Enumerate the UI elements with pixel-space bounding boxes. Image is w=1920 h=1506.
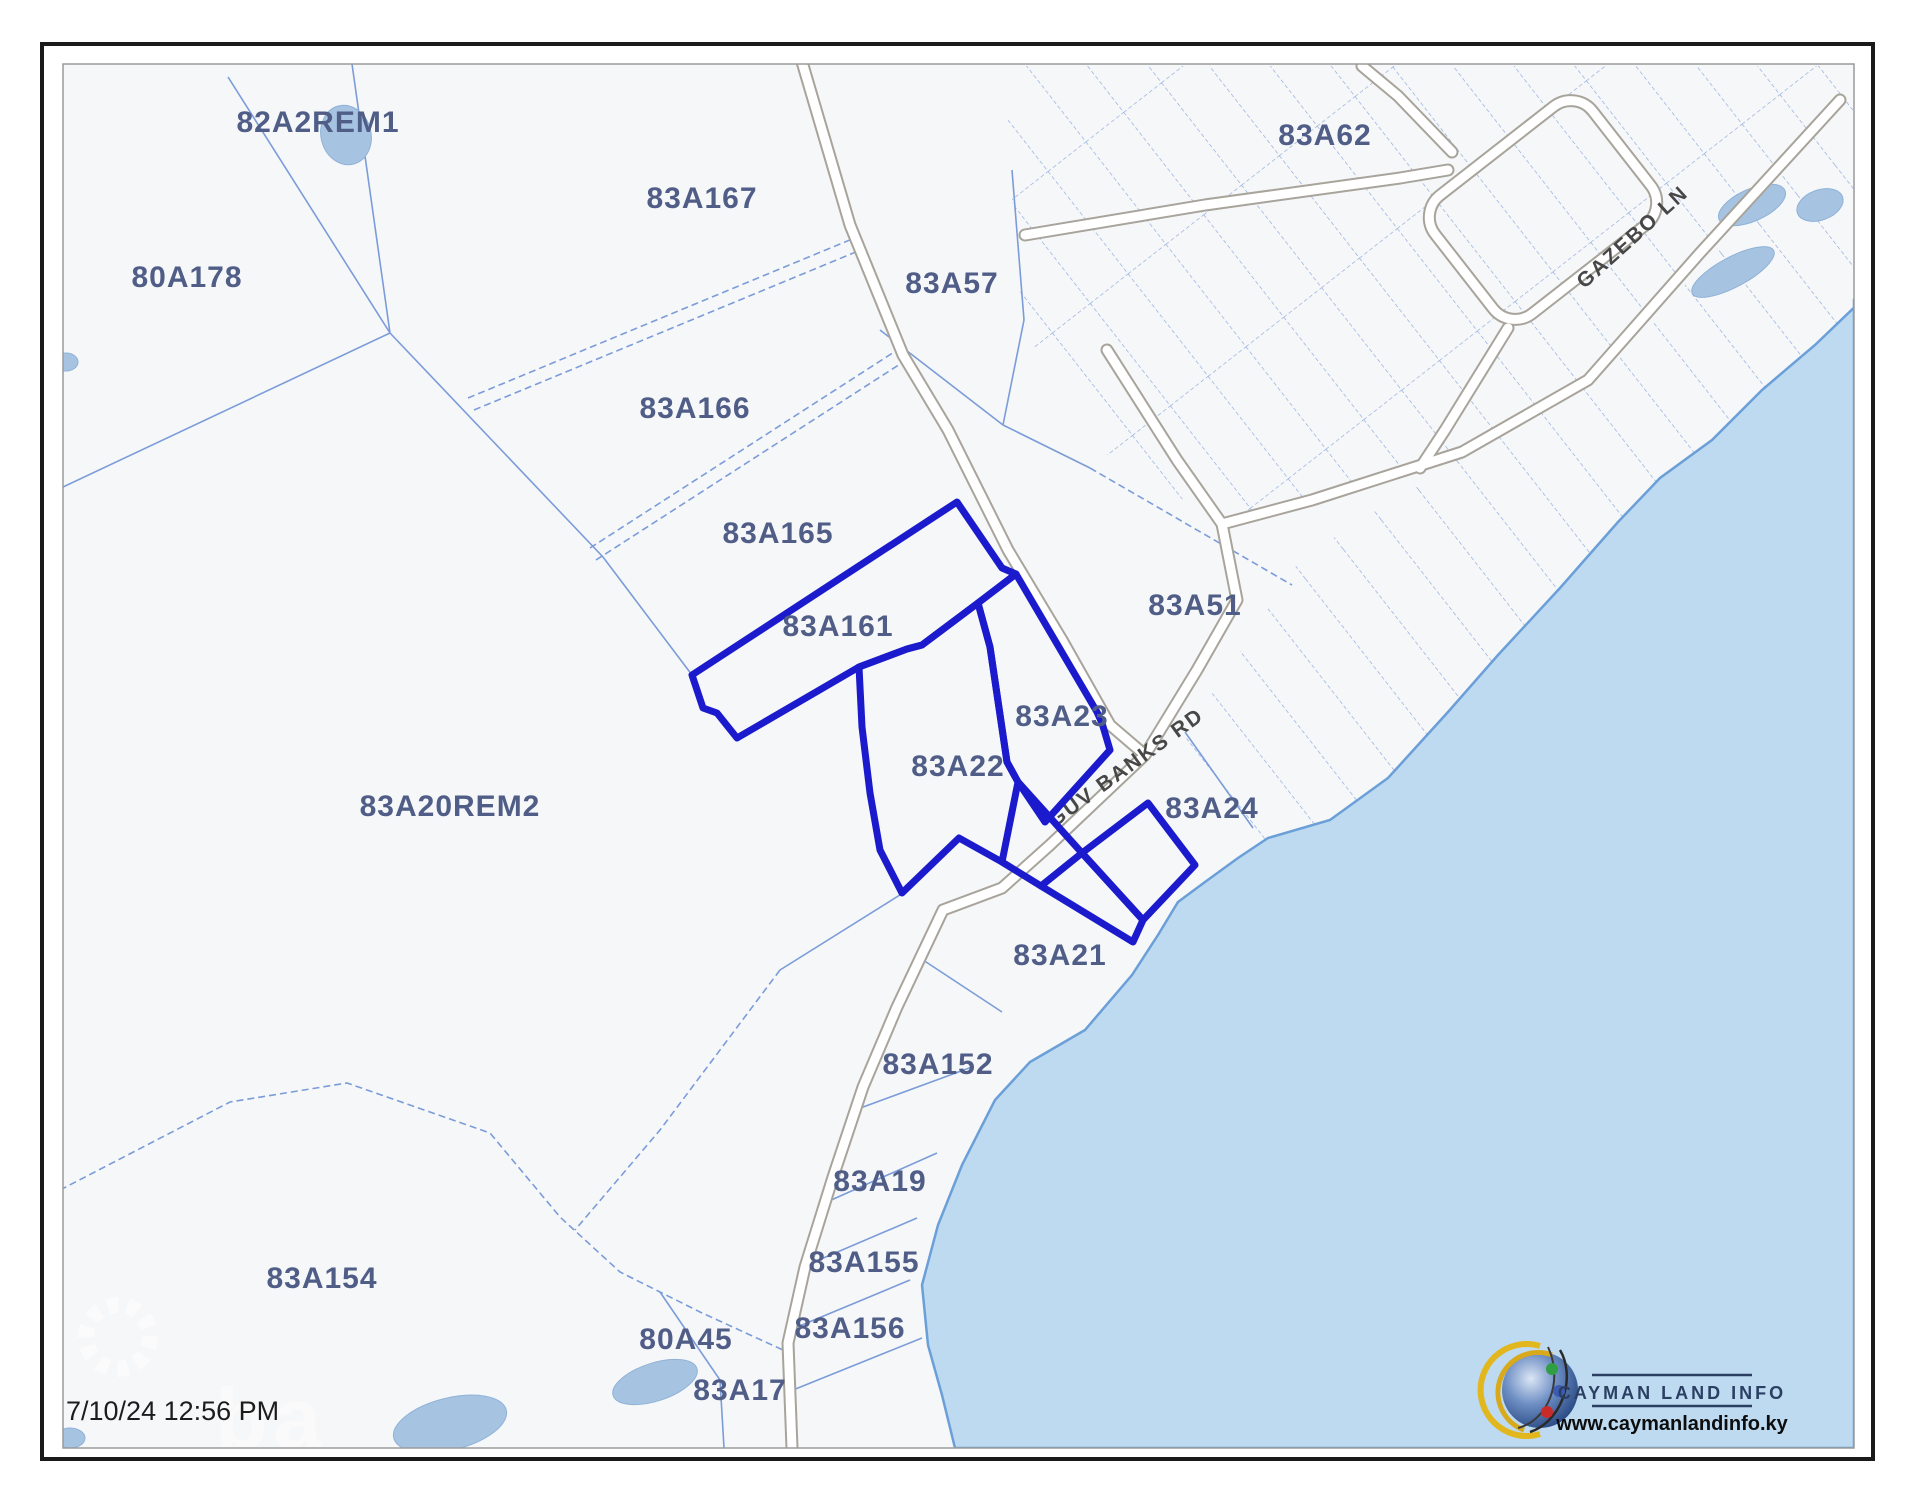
parcel-label-82A2REM1: 82A2REM1 xyxy=(236,106,399,139)
timestamp: 7/10/24 12:56 PM xyxy=(66,1396,279,1426)
parcel-label-80A178: 80A178 xyxy=(131,261,242,294)
logo-title: CAYMAN LAND INFO xyxy=(1558,1383,1786,1403)
parcel-label-83A51: 83A51 xyxy=(1148,589,1241,622)
logo-url[interactable]: www.caymanlandinfo.ky xyxy=(1555,1413,1788,1435)
map-content: GUV BANKS RD GAZEBO LN ba 82A2REM183A167… xyxy=(54,55,1862,1467)
globe-dot-red xyxy=(1541,1406,1553,1418)
parcel-label-83A166: 83A166 xyxy=(639,392,750,425)
parcel-label-83A62: 83A62 xyxy=(1278,119,1371,152)
parcel-label-83A155: 83A155 xyxy=(808,1246,919,1279)
parcel-label-83A20REM2: 83A20REM2 xyxy=(360,790,541,823)
parcel-label-83A167: 83A167 xyxy=(646,182,757,215)
map-page: GUV BANKS RD GAZEBO LN ba 82A2REM183A167… xyxy=(0,0,1920,1506)
parcel-label-83A161: 83A161 xyxy=(782,610,893,643)
parcel-label-83A154: 83A154 xyxy=(266,1262,377,1295)
parcel-label-83A165: 83A165 xyxy=(722,517,833,550)
globe-dot-green xyxy=(1546,1363,1558,1375)
parcel-label-83A57: 83A57 xyxy=(905,267,998,300)
parcel-label-83A24: 83A24 xyxy=(1165,792,1258,825)
parcel-label-83A19: 83A19 xyxy=(833,1165,926,1198)
parcel-label-83A23: 83A23 xyxy=(1015,700,1108,733)
parcel-label-80A45: 80A45 xyxy=(639,1323,732,1356)
parcel-label-83A152: 83A152 xyxy=(882,1048,993,1081)
parcel-label-83A156: 83A156 xyxy=(794,1312,905,1345)
parcel-label-83A22: 83A22 xyxy=(911,750,1004,783)
parcel-label-83A17: 83A17 xyxy=(693,1374,786,1407)
parcel-label-83A21: 83A21 xyxy=(1013,939,1106,972)
map-canvas[interactable]: GUV BANKS RD GAZEBO LN ba 82A2REM183A167… xyxy=(0,0,1920,1506)
